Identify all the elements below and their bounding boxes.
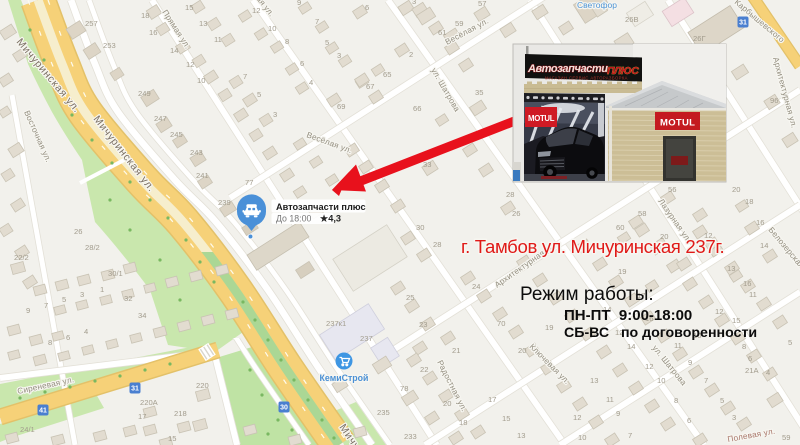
svg-text:78: 78 [400, 384, 408, 393]
svg-text:31: 31 [131, 386, 139, 393]
svg-text:60: 60 [616, 223, 624, 232]
svg-text:18: 18 [141, 11, 149, 20]
svg-text:12: 12 [645, 362, 653, 371]
svg-text:MOTUL: MOTUL [660, 118, 695, 129]
svg-text:69: 69 [337, 102, 345, 111]
svg-text:28/2: 28/2 [85, 243, 100, 252]
svg-text:19: 19 [545, 323, 553, 332]
svg-text:5: 5 [788, 338, 792, 347]
svg-text:12: 12 [252, 6, 260, 15]
svg-text:66: 66 [413, 104, 421, 113]
svg-text:6: 6 [365, 3, 369, 12]
svg-text:10: 10 [197, 76, 205, 85]
svg-text:12: 12 [573, 413, 581, 422]
svg-text:3: 3 [273, 110, 277, 119]
svg-text:7: 7 [704, 376, 708, 385]
svg-text:МАГАЗИН СЕРВИС АВТОРАЗБОРКА: МАГАЗИН СЕРВИС АВТОРАЗБОРКА [545, 76, 628, 81]
svg-text:3: 3 [337, 51, 341, 60]
svg-text:28: 28 [506, 190, 514, 199]
svg-text:Автозапчасти плюс: Автозапчасти плюс [276, 202, 366, 212]
svg-text:77: 77 [245, 178, 253, 187]
svg-text:4: 4 [84, 327, 88, 336]
svg-text:6: 6 [748, 354, 752, 363]
svg-text:16: 16 [743, 279, 751, 288]
svg-text:7: 7 [243, 72, 247, 81]
svg-text:20: 20 [732, 185, 740, 194]
svg-text:8: 8 [742, 342, 746, 351]
svg-text:10: 10 [578, 433, 586, 442]
svg-text:20: 20 [443, 399, 451, 408]
svg-text:11: 11 [606, 395, 614, 404]
svg-text:26: 26 [512, 209, 520, 218]
svg-text:245: 245 [170, 130, 183, 139]
svg-text:17: 17 [488, 395, 496, 404]
svg-text:14: 14 [627, 342, 635, 351]
svg-text:35: 35 [475, 88, 483, 97]
svg-text:237: 237 [360, 334, 373, 343]
svg-text:41: 41 [39, 408, 47, 415]
svg-text:30/1: 30/1 [108, 269, 123, 278]
svg-text:56: 56 [668, 185, 676, 194]
svg-text:3: 3 [412, 0, 416, 6]
svg-text:15: 15 [502, 414, 510, 423]
svg-text:5: 5 [720, 396, 724, 405]
svg-text:220А: 220А [140, 398, 159, 407]
svg-text:59: 59 [782, 433, 790, 442]
svg-text:10: 10 [657, 376, 665, 385]
svg-text:13: 13 [590, 376, 598, 385]
svg-text:15: 15 [732, 316, 740, 325]
svg-text:33: 33 [423, 160, 431, 169]
svg-text:4: 4 [766, 368, 770, 377]
svg-text:5: 5 [62, 295, 66, 304]
svg-text:20: 20 [518, 346, 526, 355]
svg-text:12: 12 [186, 60, 194, 69]
svg-text:257: 257 [85, 19, 98, 28]
svg-text:MOTUL: MOTUL [528, 114, 555, 123]
svg-text:13: 13 [727, 264, 735, 273]
svg-text:3: 3 [732, 413, 736, 422]
svg-text:9: 9 [688, 358, 692, 367]
svg-text:9: 9 [297, 0, 301, 7]
svg-text:9: 9 [616, 409, 620, 418]
svg-text:30: 30 [280, 405, 288, 412]
svg-text:235: 235 [377, 408, 390, 417]
svg-text:21: 21 [452, 346, 460, 355]
svg-text:57: 57 [478, 0, 486, 8]
svg-text:249: 249 [138, 89, 151, 98]
svg-text:23: 23 [419, 320, 427, 329]
svg-text:17: 17 [138, 412, 146, 421]
svg-text:8: 8 [674, 396, 678, 405]
svg-text:26: 26 [74, 227, 82, 236]
svg-text:34: 34 [138, 311, 146, 320]
svg-text:9: 9 [26, 306, 30, 315]
svg-text:3: 3 [80, 290, 84, 299]
svg-text:12: 12 [715, 307, 723, 316]
svg-text:24/1: 24/1 [20, 425, 35, 434]
svg-text:До 18:00: До 18:00 [276, 214, 312, 224]
svg-text:13: 13 [517, 431, 525, 440]
svg-text:14: 14 [760, 241, 768, 250]
svg-text:11: 11 [674, 341, 682, 350]
svg-text:7: 7 [44, 301, 48, 310]
svg-text:21А: 21А [745, 366, 759, 375]
svg-text:Режим работы:: Режим работы: [520, 284, 654, 305]
svg-text:14: 14 [170, 46, 178, 55]
svg-text:28: 28 [433, 240, 441, 249]
svg-text:2: 2 [409, 50, 413, 59]
svg-text:67: 67 [366, 82, 374, 91]
svg-text:237к1: 237к1 [326, 319, 346, 328]
svg-text:7: 7 [628, 431, 632, 440]
svg-text:241: 241 [196, 171, 209, 180]
svg-text:8: 8 [48, 338, 52, 347]
svg-text:11: 11 [749, 290, 757, 299]
svg-text:г. Тамбов ул. Мичуринская 237г: г. Тамбов ул. Мичуринская 237г. [461, 236, 724, 257]
svg-text:Светофор: Светофор [577, 0, 617, 10]
svg-text:10: 10 [268, 24, 276, 33]
svg-text:5: 5 [325, 38, 329, 47]
svg-text:КемиСтрой: КемиСтрой [320, 373, 369, 383]
svg-text:58: 58 [638, 209, 646, 218]
svg-text:ПН-ПТ 9:00-18:00: ПН-ПТ 9:00-18:00 [564, 307, 692, 324]
svg-text:239: 239 [218, 198, 231, 207]
svg-text:16: 16 [149, 28, 157, 37]
svg-text:4: 4 [309, 78, 313, 87]
svg-text:18: 18 [459, 418, 467, 427]
svg-text:6: 6 [687, 416, 691, 425]
svg-text:6: 6 [66, 333, 70, 342]
svg-text:7: 7 [315, 17, 319, 26]
svg-text:16: 16 [756, 218, 764, 227]
svg-text:11: 11 [214, 35, 222, 44]
svg-text:70: 70 [497, 319, 505, 328]
svg-text:5: 5 [257, 90, 261, 99]
svg-text:25: 25 [406, 293, 414, 302]
svg-text:22: 22 [420, 365, 428, 374]
svg-text:253: 253 [103, 41, 116, 50]
svg-text:Автозапчасти: Автозапчасти [527, 63, 608, 75]
svg-text:26В: 26В [625, 15, 639, 24]
svg-text:6: 6 [300, 59, 304, 68]
svg-text:59: 59 [455, 19, 463, 28]
svg-text:96: 96 [770, 96, 778, 105]
svg-text:220: 220 [196, 381, 209, 390]
svg-text:15: 15 [168, 434, 176, 443]
svg-text:1: 1 [100, 285, 104, 294]
svg-text:32: 32 [124, 294, 132, 303]
svg-text:22/2: 22/2 [14, 253, 29, 262]
svg-text:★4,3: ★4,3 [319, 214, 341, 224]
svg-text:8: 8 [285, 37, 289, 46]
svg-text:233: 233 [404, 432, 417, 441]
svg-text:19: 19 [618, 267, 626, 276]
svg-text:26Г: 26Г [693, 34, 706, 43]
svg-text:65: 65 [383, 70, 391, 79]
svg-text:18: 18 [745, 197, 753, 206]
svg-text:247: 247 [154, 114, 167, 123]
svg-text:СБ-ВС по договоренности: СБ-ВС по договоренности [564, 325, 757, 341]
svg-text:243: 243 [190, 148, 203, 157]
svg-text:24: 24 [472, 282, 480, 291]
svg-text:13: 13 [199, 19, 207, 28]
svg-text:15: 15 [185, 3, 193, 12]
svg-text:218: 218 [174, 409, 187, 418]
svg-text:30: 30 [416, 223, 424, 232]
svg-text:31: 31 [739, 20, 747, 27]
svg-text:61: 61 [438, 28, 446, 37]
